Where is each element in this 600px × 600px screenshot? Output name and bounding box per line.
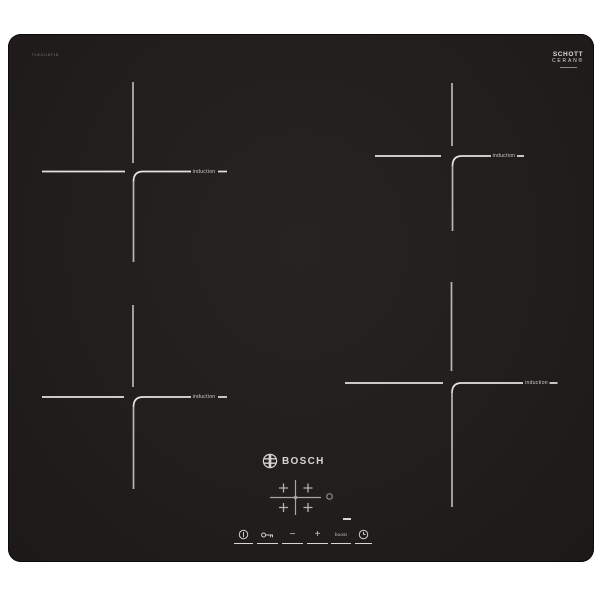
zone-select-rear-left-plus-button[interactable] [279,484,288,493]
indicator-dash [343,518,351,520]
power-icon [238,529,249,540]
increase-button[interactable]: + [307,526,328,544]
zone-line-corner-right [134,397,192,407]
product-image: PUE611BF1B SCHOTT CERAN® [0,0,600,600]
clock-icon [358,529,369,540]
induction-label: induction [193,394,216,400]
minus-icon: − [290,530,296,540]
plus-icon: + [315,530,321,540]
ring-indicator [325,492,335,502]
boost-button[interactable]: boost [331,526,351,544]
induction-label: induction [525,380,548,386]
key-icon [261,531,275,539]
zone-line-corner-right [453,156,492,166]
boost-button-label: boost [335,532,347,537]
zone-select-rear-right-plus-button[interactable] [304,484,313,493]
decrease-button[interactable]: − [282,526,303,544]
bosch-armature-icon [262,453,278,469]
model-number: PUE611BF1B [32,52,59,57]
zone-selector-diagram [264,475,328,521]
hob-panel: PUE611BF1B SCHOTT CERAN® [8,34,594,562]
timer-button[interactable] [355,526,372,544]
induction-label: induction [493,153,516,159]
zone-select-front-left-plus-button[interactable] [279,503,288,512]
schott-logo-subtext [560,67,577,69]
power-button[interactable] [234,526,253,544]
child-lock-button[interactable] [257,526,278,544]
schott-logo-line1: SCHOTT [548,51,588,58]
zone-line-corner-right [452,383,523,393]
selector-center-dot [294,496,298,500]
zone-line-corner-right [134,172,192,182]
schott-ceran-logo: SCHOTT CERAN® [548,51,588,68]
zone-select-front-right-plus-button[interactable] [304,503,313,512]
schott-logo-line2: CERAN® [548,58,588,64]
induction-label: induction [193,169,216,175]
bosch-logo: BOSCH [262,452,325,470]
zone-front-right [345,282,558,507]
bosch-logo-text: BOSCH [282,456,325,467]
